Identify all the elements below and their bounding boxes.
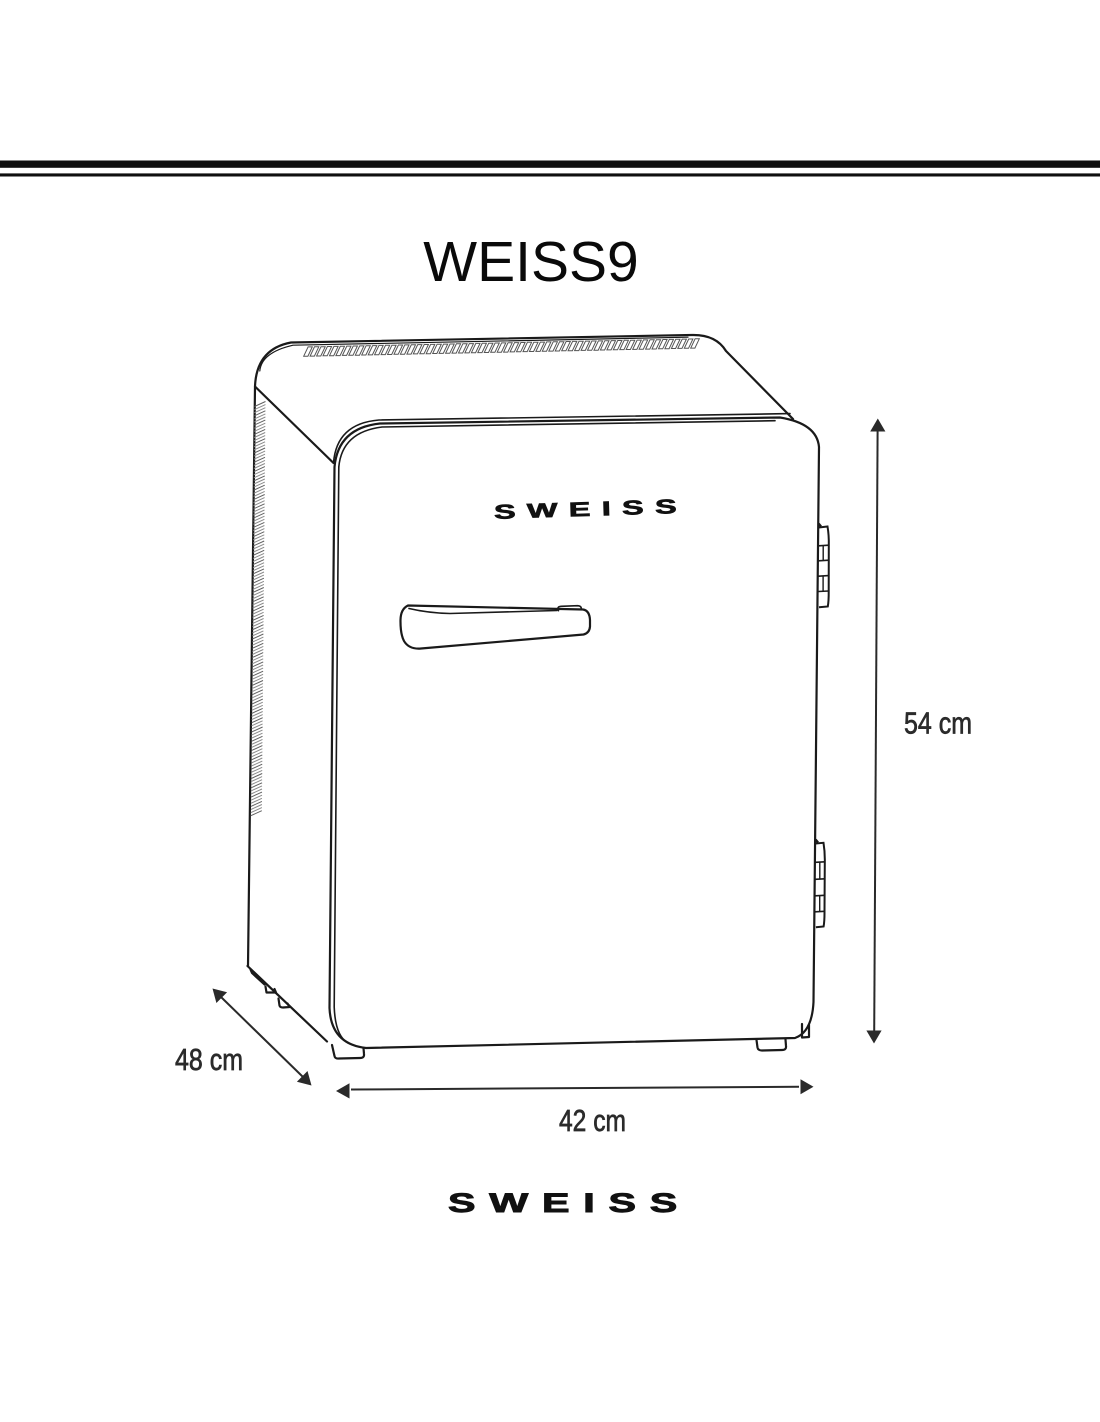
svg-text:SWEISS: SWEISS (448, 1188, 691, 1218)
svg-text:WEISS9: WEISS9 (423, 230, 638, 294)
svg-text:SWEISS: SWEISS (494, 496, 689, 524)
svg-text:42 cm: 42 cm (559, 1103, 626, 1138)
svg-text:48 cm: 48 cm (175, 1042, 243, 1077)
svg-text:54 cm: 54 cm (904, 706, 972, 741)
